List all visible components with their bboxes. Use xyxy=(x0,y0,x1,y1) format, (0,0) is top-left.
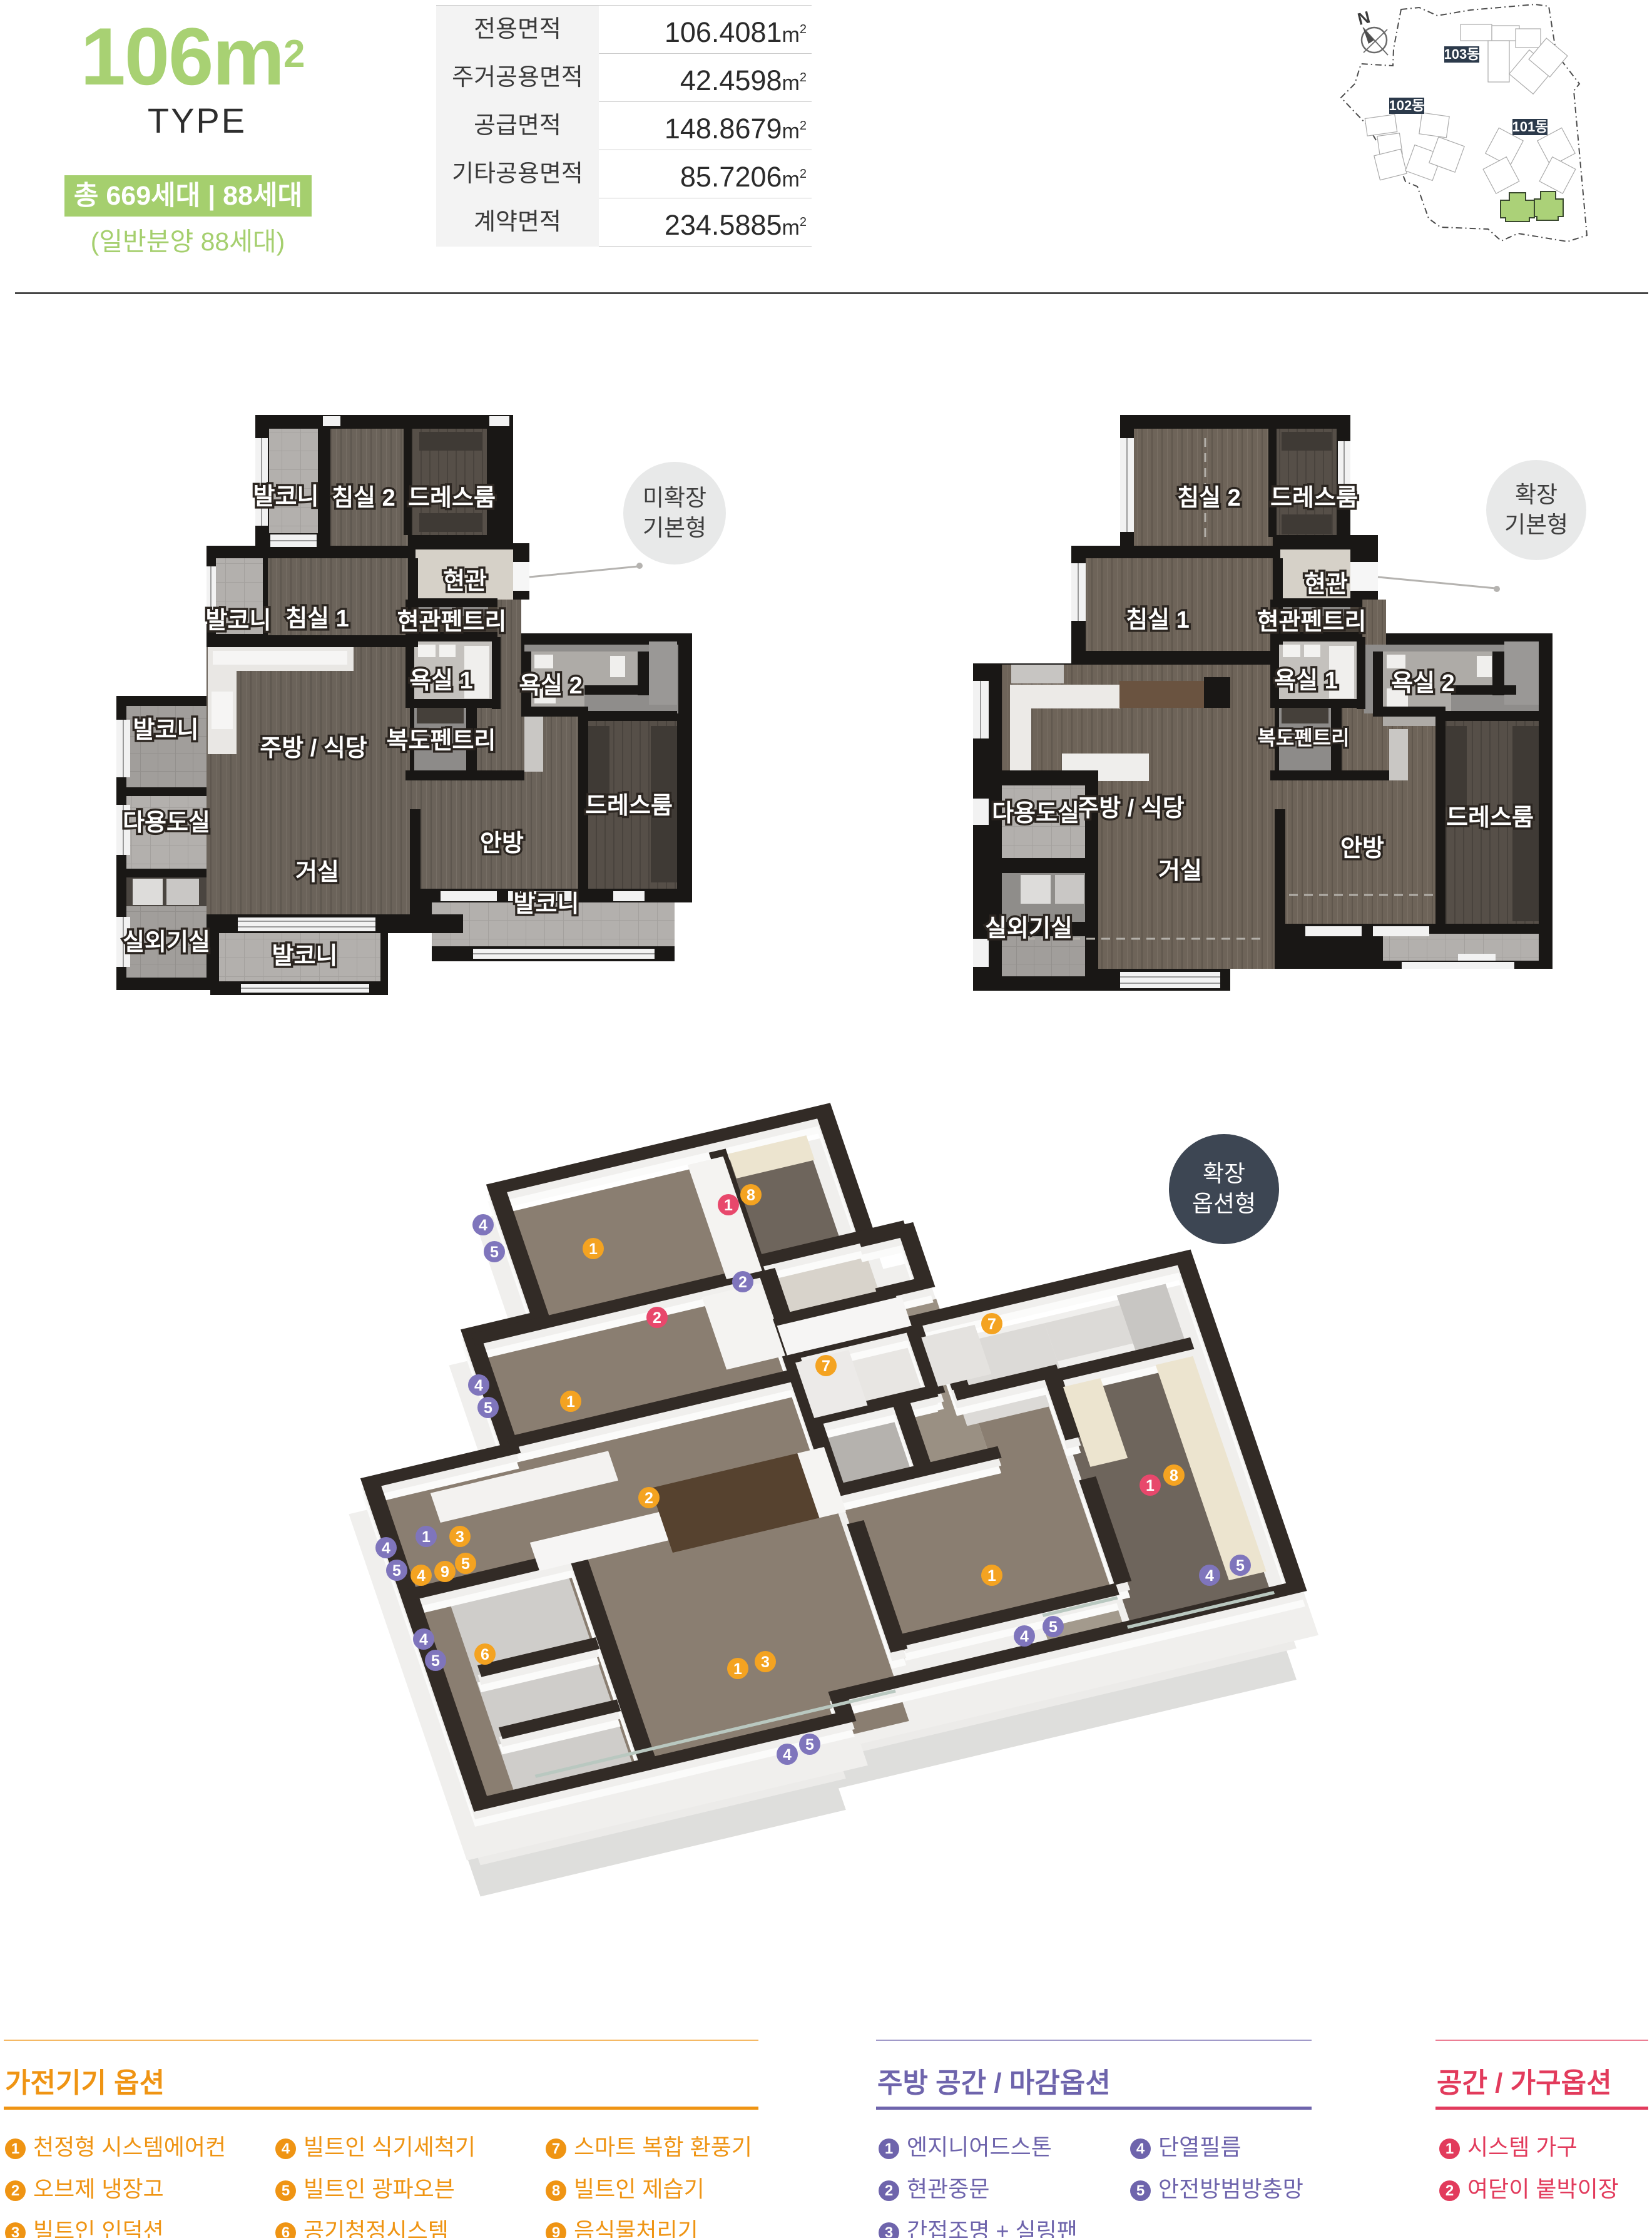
svg-text:발코니: 발코니 xyxy=(514,891,579,917)
svg-text:5: 5 xyxy=(461,1555,470,1573)
svg-text:N: N xyxy=(1355,8,1372,29)
svg-text:옵션형: 옵션형 xyxy=(1192,1191,1256,1217)
svg-text:1: 1 xyxy=(987,1567,996,1585)
svg-text:4: 4 xyxy=(474,1377,483,1394)
svg-text:확장: 확장 xyxy=(1515,482,1558,508)
svg-text:드레스룸: 드레스룸 xyxy=(408,485,496,511)
svg-text:드레스룸: 드레스룸 xyxy=(1446,805,1534,831)
svg-text:침실 2: 침실 2 xyxy=(332,485,395,511)
svg-text:복도펜트리: 복도펜트리 xyxy=(387,728,496,754)
svg-text:102동: 102동 xyxy=(1389,98,1425,113)
svg-text:101동: 101동 xyxy=(1512,119,1548,135)
svg-text:실외기실: 실외기실 xyxy=(985,916,1073,942)
svg-text:7: 7 xyxy=(822,1357,830,1375)
svg-text:5: 5 xyxy=(484,1399,492,1417)
svg-text:6: 6 xyxy=(481,1646,489,1663)
svg-text:1: 1 xyxy=(566,1393,575,1411)
svg-text:5: 5 xyxy=(431,1652,440,1670)
svg-text:8: 8 xyxy=(747,1187,755,1204)
svg-text:9: 9 xyxy=(441,1563,449,1581)
svg-text:기본형: 기본형 xyxy=(1504,512,1568,538)
svg-text:안방: 안방 xyxy=(480,830,524,857)
svg-text:5: 5 xyxy=(490,1244,499,1261)
svg-text:1: 1 xyxy=(589,1240,598,1258)
svg-text:실외기실: 실외기실 xyxy=(123,929,210,956)
svg-text:1: 1 xyxy=(422,1528,431,1546)
svg-text:1: 1 xyxy=(1146,1477,1155,1495)
svg-text:드레스룸: 드레스룸 xyxy=(585,793,673,819)
svg-text:5: 5 xyxy=(805,1736,814,1754)
svg-text:3: 3 xyxy=(761,1653,770,1671)
svg-text:4: 4 xyxy=(479,1217,487,1234)
svg-text:침실 1: 침실 1 xyxy=(1126,607,1190,633)
svg-text:4: 4 xyxy=(417,1567,426,1585)
svg-text:7: 7 xyxy=(987,1316,996,1333)
svg-text:5: 5 xyxy=(1049,1618,1058,1636)
svg-text:1: 1 xyxy=(733,1660,742,1678)
svg-text:욕실 1: 욕실 1 xyxy=(1274,668,1338,694)
svg-text:침실 2: 침실 2 xyxy=(1177,485,1241,511)
svg-text:욕실 2: 욕실 2 xyxy=(519,673,583,699)
svg-text:8: 8 xyxy=(1170,1467,1178,1484)
svg-text:발코니: 발코니 xyxy=(272,943,338,969)
svg-text:4: 4 xyxy=(419,1631,428,1648)
svg-text:다용도실: 다용도실 xyxy=(123,810,210,836)
svg-text:현관: 현관 xyxy=(443,568,487,595)
svg-text:주방 / 식당: 주방 / 식당 xyxy=(260,735,367,762)
svg-text:발코니: 발코니 xyxy=(206,608,272,634)
svg-text:2: 2 xyxy=(738,1274,747,1291)
svg-text:복도펜트리: 복도펜트리 xyxy=(1257,727,1349,749)
svg-text:4: 4 xyxy=(1020,1628,1029,1645)
svg-text:4: 4 xyxy=(382,1540,390,1557)
svg-text:2: 2 xyxy=(645,1489,653,1507)
svg-text:5: 5 xyxy=(1236,1557,1245,1575)
svg-text:발코니: 발코니 xyxy=(133,717,199,743)
svg-text:현관펜트리: 현관펜트리 xyxy=(1257,609,1367,635)
svg-text:드레스룸: 드레스룸 xyxy=(1270,485,1358,511)
svg-text:103동: 103동 xyxy=(1444,46,1480,62)
svg-text:욕실 2: 욕실 2 xyxy=(1391,670,1455,697)
svg-text:현관펜트리: 현관펜트리 xyxy=(397,609,507,635)
svg-text:확장: 확장 xyxy=(1203,1161,1245,1187)
svg-text:미확장: 미확장 xyxy=(643,485,706,511)
svg-text:3: 3 xyxy=(456,1528,464,1546)
svg-text:발코니: 발코니 xyxy=(253,484,319,510)
svg-text:현관: 현관 xyxy=(1304,571,1348,598)
svg-text:4: 4 xyxy=(783,1746,792,1764)
svg-text:거실: 거실 xyxy=(1158,858,1202,884)
svg-text:침실 1: 침실 1 xyxy=(285,606,349,632)
svg-text:안방: 안방 xyxy=(1340,835,1384,862)
svg-text:기본형: 기본형 xyxy=(643,515,706,541)
svg-text:거실: 거실 xyxy=(295,859,339,886)
svg-text:1: 1 xyxy=(724,1197,733,1214)
svg-text:다용도실: 다용도실 xyxy=(992,800,1079,827)
svg-text:주방 / 식당: 주방 / 식당 xyxy=(1077,795,1185,822)
svg-text:2: 2 xyxy=(653,1309,661,1327)
svg-text:4: 4 xyxy=(1205,1567,1214,1585)
svg-text:5: 5 xyxy=(392,1562,401,1580)
svg-text:욕실 1: 욕실 1 xyxy=(409,668,473,694)
